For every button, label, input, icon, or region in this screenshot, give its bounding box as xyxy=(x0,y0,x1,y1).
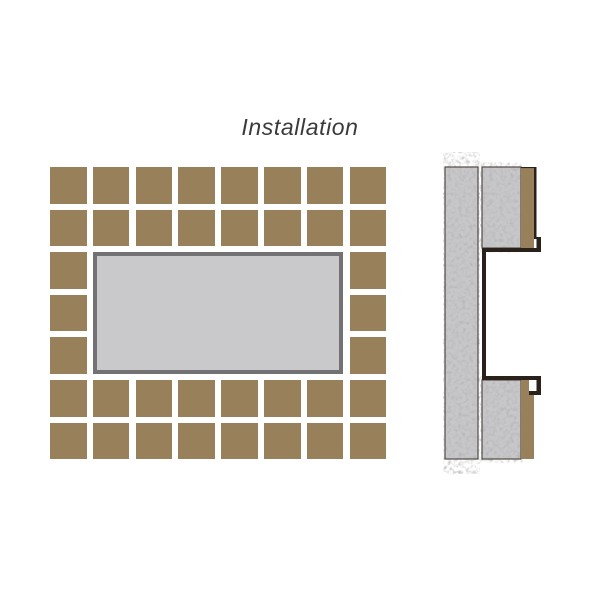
wall-tile xyxy=(307,167,344,204)
niche-bottom-wall xyxy=(482,376,541,380)
wall-tile xyxy=(93,167,130,204)
wall-tile xyxy=(136,423,173,460)
wall-tile xyxy=(50,337,87,374)
wall-tile xyxy=(50,167,87,204)
wall-tile xyxy=(221,210,258,247)
wall-tile xyxy=(221,167,258,204)
wall-tile xyxy=(264,210,301,247)
diagram-title: Installation xyxy=(0,114,600,141)
wall-tile xyxy=(178,210,215,247)
wall-tile xyxy=(350,295,387,332)
wall-tile xyxy=(221,380,258,417)
wall-tile xyxy=(264,423,301,460)
wall-tile xyxy=(221,423,258,460)
wall-tile xyxy=(136,210,173,247)
wall-tile xyxy=(50,295,87,332)
substrate-lower-right xyxy=(482,380,521,459)
wall-tile xyxy=(50,210,87,247)
wall-tile xyxy=(93,380,130,417)
wall-tile xyxy=(264,380,301,417)
wall-tile xyxy=(136,167,173,204)
wall-tile xyxy=(350,167,387,204)
wall-tile xyxy=(93,210,130,247)
wall-tile xyxy=(93,423,130,460)
niche-front-lip-upper xyxy=(534,167,537,239)
wall-tile xyxy=(264,167,301,204)
wall-tile xyxy=(350,337,387,374)
installation-diagram: Installation xyxy=(0,0,600,600)
front-view-tiled-wall xyxy=(50,167,390,461)
wall-tile xyxy=(350,210,387,247)
niche-frame-front xyxy=(93,252,344,374)
wall-tile xyxy=(50,252,87,289)
niche-top-wall xyxy=(482,248,541,252)
niche-opening xyxy=(97,256,340,370)
tile-upper xyxy=(521,167,534,248)
section-view-wall-cross-section xyxy=(430,150,570,480)
wall-tile xyxy=(350,423,387,460)
wall-tile xyxy=(307,423,344,460)
niche-hook-lower-return xyxy=(529,391,541,395)
niche-hook-lower-notch xyxy=(529,380,537,391)
substrate-upper-right xyxy=(482,167,521,248)
wall-tile xyxy=(50,380,87,417)
wall-tile xyxy=(178,380,215,417)
wall-tile xyxy=(350,380,387,417)
substrate-left xyxy=(445,167,478,459)
wall-tile xyxy=(50,423,87,460)
wall-tile xyxy=(178,423,215,460)
wall-tile xyxy=(178,167,215,204)
wall-tile xyxy=(307,210,344,247)
wall-tile xyxy=(350,252,387,289)
wall-tile xyxy=(307,380,344,417)
wall-tile xyxy=(136,380,173,417)
niche-back-wall xyxy=(482,248,486,380)
